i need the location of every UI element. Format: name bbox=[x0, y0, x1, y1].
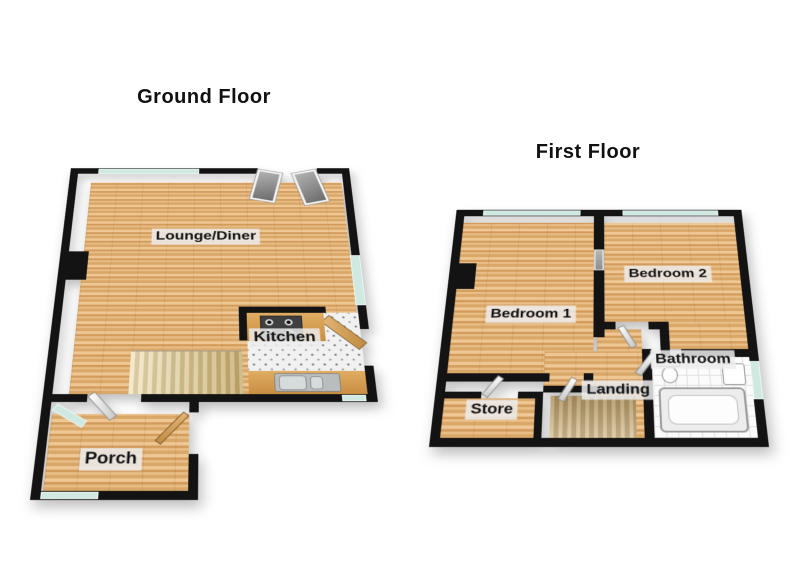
wall-segment bbox=[435, 392, 482, 399]
bedroom2-window bbox=[622, 210, 718, 215]
porch-label: Porch bbox=[79, 448, 143, 470]
bedroom2-label: Bedroom 2 bbox=[624, 266, 712, 282]
sink-bowl bbox=[310, 376, 324, 389]
stove-burner bbox=[265, 319, 273, 325]
wall-segment bbox=[429, 438, 769, 447]
wall-segment bbox=[456, 263, 476, 289]
bathtub-inner bbox=[667, 395, 739, 424]
wall-segment bbox=[189, 402, 198, 412]
kitchen-sink bbox=[274, 373, 342, 392]
kitchen-window bbox=[342, 395, 367, 401]
wall-segment bbox=[604, 322, 615, 330]
bedroom1-label: Bedroom 1 bbox=[485, 306, 576, 323]
ground-floor-title: Ground Floor bbox=[137, 86, 271, 109]
wall-segment bbox=[594, 216, 604, 249]
bedroom1-window bbox=[483, 210, 581, 215]
ground-floor-plan: Lounge/Diner Kitchen Porch bbox=[30, 168, 390, 500]
sink-bowl bbox=[279, 375, 307, 390]
first-floor-plan: Bedroom 1 Bedroom 2 Bathroom Landing Sto… bbox=[429, 210, 769, 447]
bathroom-label: Bathroom bbox=[650, 350, 736, 369]
lounge-front-window bbox=[98, 169, 199, 174]
store-label: Store bbox=[465, 400, 519, 420]
landing-label: Landing bbox=[582, 380, 656, 399]
toilet bbox=[661, 367, 678, 384]
ground-staircase bbox=[128, 351, 243, 394]
bathtub bbox=[658, 387, 749, 432]
wall-segment bbox=[66, 251, 89, 279]
wall-segment bbox=[188, 454, 198, 491]
kitchen-counter-sink bbox=[248, 371, 367, 394]
porch-window bbox=[40, 492, 99, 499]
cupboard-door bbox=[595, 250, 604, 271]
wall-segment bbox=[593, 270, 604, 337]
first-floor-title: First Floor bbox=[536, 141, 640, 164]
first-floor-staircase bbox=[549, 396, 636, 438]
lounge-label: Lounge/Diner bbox=[151, 229, 260, 245]
wall-segment bbox=[357, 305, 369, 329]
bedroom2-floor bbox=[668, 322, 748, 349]
stove-burner bbox=[284, 319, 292, 325]
floorplan-page: { "page": { "background": "#ffffff" }, "… bbox=[0, 0, 800, 582]
kitchen-label: Kitchen bbox=[249, 328, 321, 347]
wall-segment bbox=[42, 394, 87, 402]
